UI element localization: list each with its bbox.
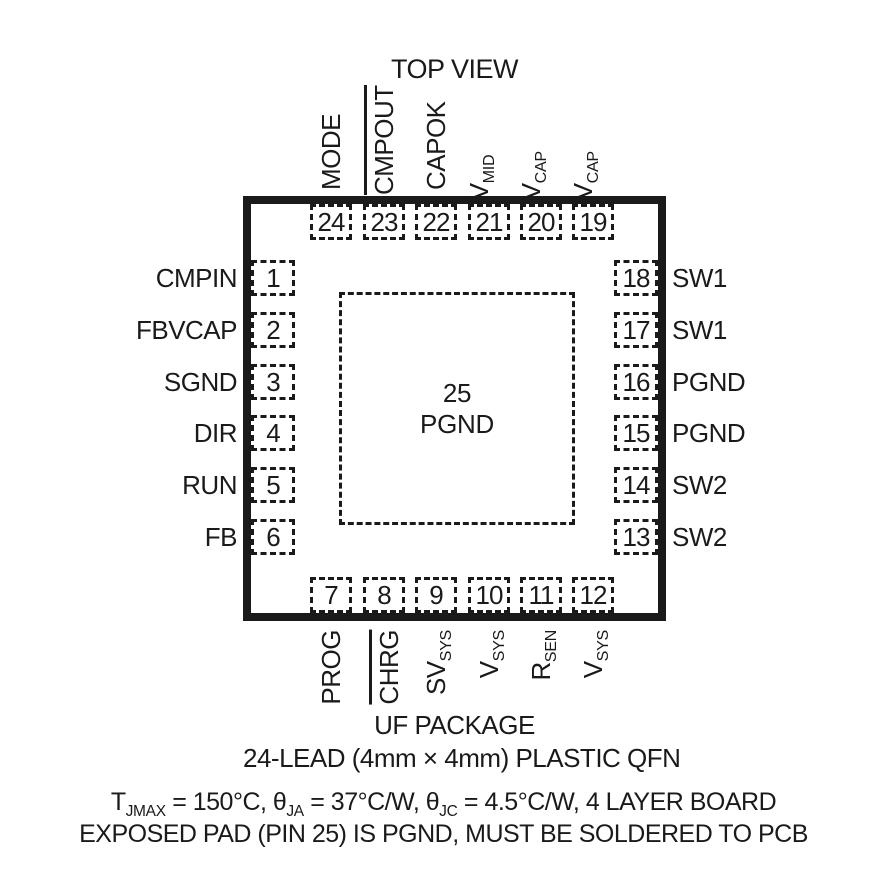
thermal-note: TJMAX = 150°C, θJA = 37°C/W, θJC = 4.5°C… [0, 788, 887, 821]
pin-9-label: SVSYS [421, 630, 461, 695]
pin-21-box: 21 [468, 204, 510, 240]
pin-20-label: VCAP [516, 151, 556, 200]
pin-12-label: VSYS [578, 630, 618, 678]
pin-10-label: VSYS [474, 630, 514, 678]
pin-13-label: SW2 [672, 519, 727, 555]
pin-14-box: 14 [614, 467, 658, 503]
pin-5-label: RUN [182, 467, 237, 503]
pin-20-box: 20 [520, 204, 562, 240]
pin-1-box: 1 [251, 260, 295, 296]
package-description: 24-LEAD (4mm × 4mm) PLASTIC QFN [243, 743, 666, 774]
pin-15-number: 15 [623, 418, 650, 449]
pin-8-number: 8 [377, 580, 390, 611]
pin-2-label: FBVCAP [136, 312, 237, 348]
pin-12-number: 12 [580, 580, 607, 611]
pin-15-box: 15 [614, 415, 658, 451]
diagram-title: TOP VIEW [243, 54, 666, 85]
exposed-pad-label: PGND [420, 409, 494, 440]
pin-2-number: 2 [266, 315, 279, 346]
exposed-pad-note: EXPOSED PAD (PIN 25) IS PGND, MUST BE SO… [0, 820, 887, 849]
pin-19-number: 19 [580, 207, 607, 238]
pin-7-number: 7 [324, 580, 337, 611]
package-name: UF PACKAGE [243, 710, 666, 741]
pin-22-label: CAPOK [421, 101, 451, 190]
pin-10-number: 10 [476, 580, 503, 611]
pin-9-number: 9 [429, 580, 442, 611]
pin-16-label: PGND [672, 364, 745, 400]
pin-2-box: 2 [251, 312, 295, 348]
pin-19-label: VCAP [568, 151, 608, 200]
pin-3-label: SGND [164, 364, 237, 400]
pin-1-label: CMPIN [156, 260, 237, 296]
pin-16-number: 16 [623, 367, 650, 398]
pin-5-number: 5 [266, 470, 279, 501]
pin-24-box: 24 [310, 204, 352, 240]
pin-21-label: VMID [464, 155, 504, 200]
pin-10-box: 10 [468, 577, 510, 613]
pin-24-label: MODE [316, 114, 346, 190]
exposed-pad: 25 PGND [339, 292, 575, 525]
pin-11-number: 11 [529, 580, 554, 611]
pin-3-number: 3 [266, 367, 279, 398]
pin-8-label: CHRG [369, 630, 404, 705]
pin-14-number: 14 [623, 470, 650, 501]
pin-4-number: 4 [266, 418, 279, 449]
exposed-pad-number: 25 [443, 378, 471, 409]
pin-6-box: 6 [251, 519, 295, 555]
pin-11-box: 11 [520, 577, 562, 613]
pin-17-box: 17 [614, 312, 658, 348]
pin-3-box: 3 [251, 364, 295, 400]
pin-17-number: 17 [623, 315, 650, 346]
pin-8-box: 8 [363, 577, 405, 613]
pin-7-box: 7 [310, 577, 352, 613]
pin-21-number: 21 [476, 207, 503, 238]
pin-19-box: 19 [572, 204, 614, 240]
pin-23-number: 23 [371, 207, 398, 238]
pin-5-box: 5 [251, 467, 295, 503]
pin-15-label: PGND [672, 415, 745, 451]
pin-9-box: 9 [415, 577, 457, 613]
pin-6-label: FB [205, 519, 237, 555]
pin-14-label: SW2 [672, 467, 727, 503]
pin-18-number: 18 [623, 263, 650, 294]
pin-1-number: 1 [266, 263, 279, 294]
pin-12-box: 12 [572, 577, 614, 613]
pin-22-number: 22 [423, 207, 450, 238]
pin-13-number: 13 [623, 522, 650, 553]
pin-6-number: 6 [266, 522, 279, 553]
pin-16-box: 16 [614, 364, 658, 400]
pin-22-box: 22 [415, 204, 457, 240]
pin-13-box: 13 [614, 519, 658, 555]
pinout-diagram: TOP VIEW 25 PGND 24 23 22 21 20 19 MODE … [0, 0, 887, 880]
pin-18-box: 18 [614, 260, 658, 296]
pin-23-label: CMPOUT [364, 85, 399, 195]
pin-18-label: SW1 [672, 260, 727, 296]
pin-17-label: SW1 [672, 312, 727, 348]
pin-23-box: 23 [363, 204, 405, 240]
pin-20-number: 20 [528, 207, 555, 238]
pin-7-label: PROG [316, 630, 346, 705]
pin-4-label: DIR [194, 415, 237, 451]
pin-24-number: 24 [318, 207, 345, 238]
pin-11-label: RSEN [526, 630, 566, 681]
pin-4-box: 4 [251, 415, 295, 451]
